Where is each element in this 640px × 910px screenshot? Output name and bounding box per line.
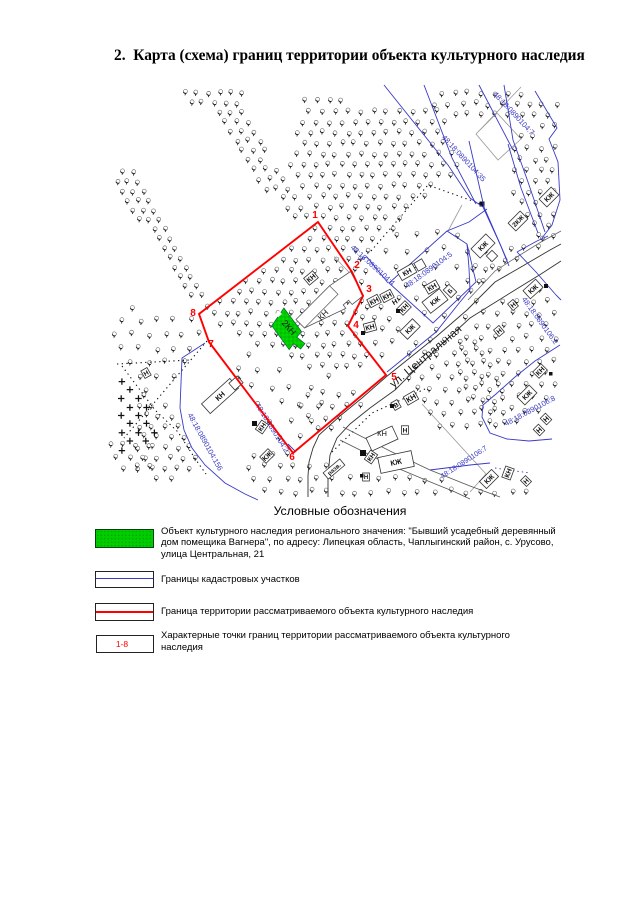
svg-text:6: 6 bbox=[289, 452, 295, 463]
svg-text:Н: Н bbox=[403, 427, 408, 434]
svg-text:3: 3 bbox=[366, 284, 372, 295]
svg-text:Н: Н bbox=[364, 475, 368, 481]
svg-text:8: 8 bbox=[190, 308, 196, 319]
svg-text:7: 7 bbox=[208, 339, 214, 350]
svg-text:КН: КН bbox=[377, 429, 387, 438]
svg-text:4: 4 bbox=[353, 320, 359, 331]
svg-text:2: 2 bbox=[354, 260, 360, 271]
svg-text:1: 1 bbox=[312, 210, 318, 221]
